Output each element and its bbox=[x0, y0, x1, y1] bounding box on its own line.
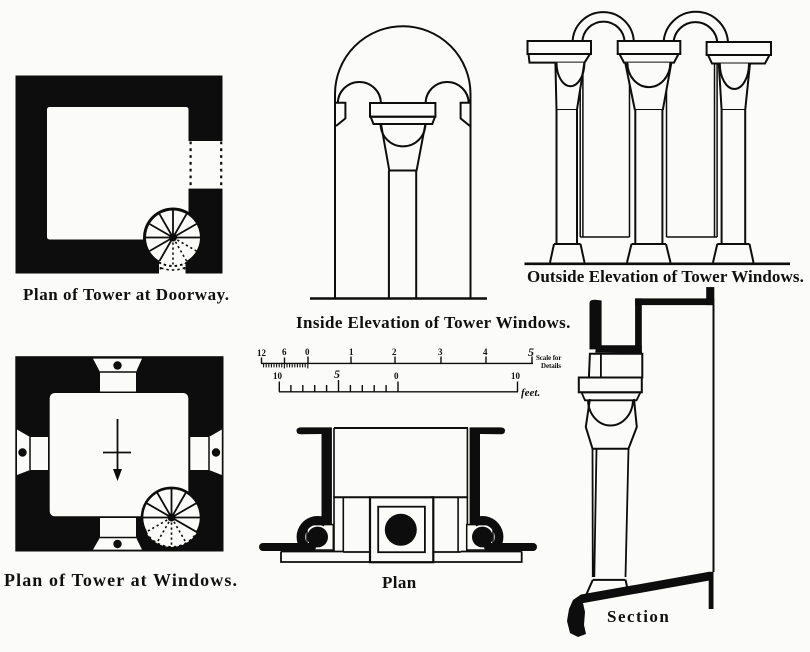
svg-text:6: 6 bbox=[282, 347, 287, 357]
svg-text:12: 12 bbox=[257, 348, 267, 358]
svg-text:Plan of Tower at Windows.: Plan of Tower at Windows. bbox=[4, 570, 238, 590]
svg-text:Plan: Plan bbox=[382, 573, 417, 592]
svg-text:Scale for: Scale for bbox=[536, 354, 561, 362]
svg-text:1: 1 bbox=[349, 347, 354, 357]
svg-text:Section: Section bbox=[607, 607, 670, 626]
svg-text:5: 5 bbox=[528, 345, 534, 359]
svg-text:10: 10 bbox=[273, 371, 283, 381]
svg-text:2: 2 bbox=[392, 347, 397, 357]
svg-text:0: 0 bbox=[305, 347, 310, 357]
svg-text:feet.: feet. bbox=[521, 387, 540, 399]
svg-text:Outside Elevation of Tower Win: Outside Elevation of Tower Windows. bbox=[527, 267, 804, 286]
svg-text:Plan of Tower at Doorway.: Plan of Tower at Doorway. bbox=[23, 285, 230, 304]
svg-text:10: 10 bbox=[511, 371, 521, 381]
svg-text:Inside Elevation of Tower Wind: Inside Elevation of Tower Windows. bbox=[296, 313, 571, 332]
svg-text:5: 5 bbox=[334, 367, 340, 381]
svg-text:Details: Details bbox=[541, 362, 561, 370]
svg-text:0: 0 bbox=[394, 371, 399, 381]
svg-text:3: 3 bbox=[438, 347, 443, 357]
svg-text:4: 4 bbox=[483, 347, 488, 357]
